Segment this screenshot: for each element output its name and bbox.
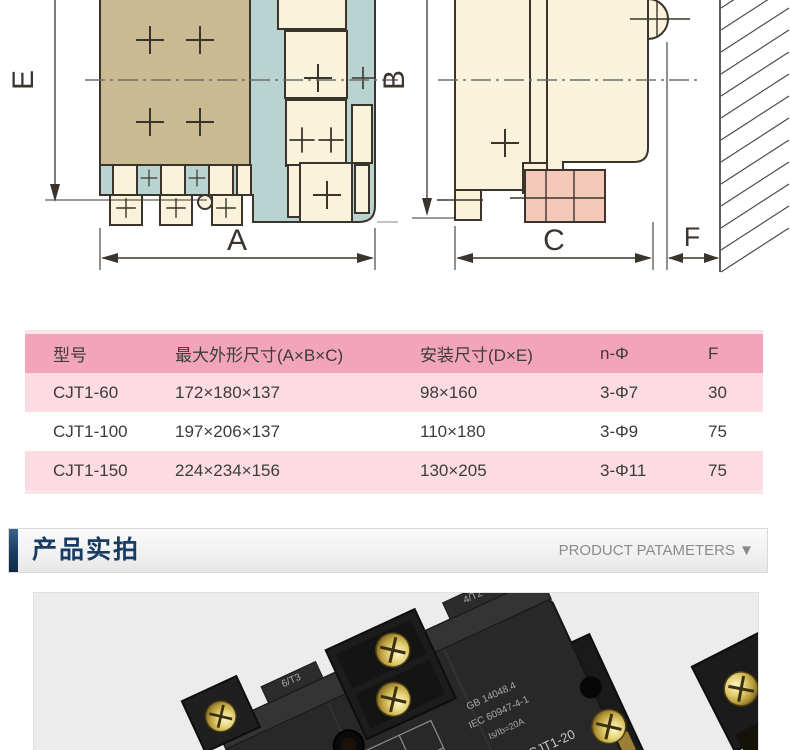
table-row: CJT1-100 197×206×137 110×180 3-Φ9 75 — [25, 412, 763, 451]
cell-model: CJT1-150 — [25, 451, 175, 492]
cell-mounting: 98×160 — [420, 373, 600, 412]
spec-table: 型号 最大外形尺寸(A×B×C) 安装尺寸(D×E) n-Φ F CJT1-60… — [25, 330, 763, 494]
cell-f: 75 — [708, 412, 763, 451]
section-title: 产品实拍 — [32, 529, 140, 572]
col-header-dimensions: 最大外形尺寸(A×B×C) — [175, 332, 420, 373]
col-header-model: 型号 — [25, 332, 175, 373]
dim-label-e: E — [7, 70, 40, 90]
contactor-device: 4/T2 6/T3 — [182, 593, 674, 750]
product-page: E A — [0, 0, 790, 750]
cell-f: 75 — [708, 451, 763, 492]
cell-mounting: 130×205 — [420, 451, 600, 492]
dim-label-c: C — [543, 224, 565, 257]
cell-f: 30 — [708, 373, 763, 412]
col-header-f: F — [708, 332, 763, 373]
col-header-mounting: 安装尺寸(D×E) — [420, 332, 600, 373]
pink-block — [525, 170, 605, 222]
cell-model: CJT1-60 — [25, 373, 175, 412]
col-header-holes: n-Φ — [600, 332, 708, 373]
section-header-bar: 产品实拍 PRODUCT PATAMETERS ▼ — [8, 528, 768, 573]
dimension-drawing: E A — [0, 0, 790, 296]
section-accent-bar — [9, 529, 18, 572]
spec-table-header-row: 型号 最大外形尺寸(A×B×C) 安装尺寸(D×E) n-Φ F — [25, 332, 763, 373]
dim-label-b: B — [378, 70, 411, 90]
table-row: CJT1-60 172×180×137 98×160 3-Φ7 30 — [25, 373, 763, 412]
cell-holes: 3-Φ11 — [600, 451, 708, 492]
product-photo-svg: 4/T2 6/T3 — [34, 593, 758, 750]
cell-dimensions: 224×234×156 — [175, 451, 420, 492]
cell-model: CJT1-100 — [25, 412, 175, 451]
dim-label-f: F — [684, 222, 701, 252]
cell-mounting: 110×180 — [420, 412, 600, 451]
cell-holes: 3-Φ7 — [600, 373, 708, 412]
product-photo: 4/T2 6/T3 — [33, 592, 759, 750]
cell-holes: 3-Φ9 — [600, 412, 708, 451]
dimension-b — [412, 0, 456, 218]
wall-hatching — [720, 0, 789, 272]
side-view — [437, 0, 702, 222]
section-subtitle-link[interactable]: PRODUCT PATAMETERS ▼ — [559, 529, 754, 572]
table-row: CJT1-150 224×234×156 130×205 3-Φ11 75 — [25, 451, 763, 492]
dimension-drawing-svg: E A — [0, 0, 790, 296]
terminal-block-right — [692, 633, 758, 750]
dimension-a — [100, 222, 398, 270]
dim-label-a: A — [227, 224, 247, 257]
cell-dimensions: 172×180×137 — [175, 373, 420, 412]
front-view — [85, 0, 398, 225]
cell-dimensions: 197×206×137 — [175, 412, 420, 451]
